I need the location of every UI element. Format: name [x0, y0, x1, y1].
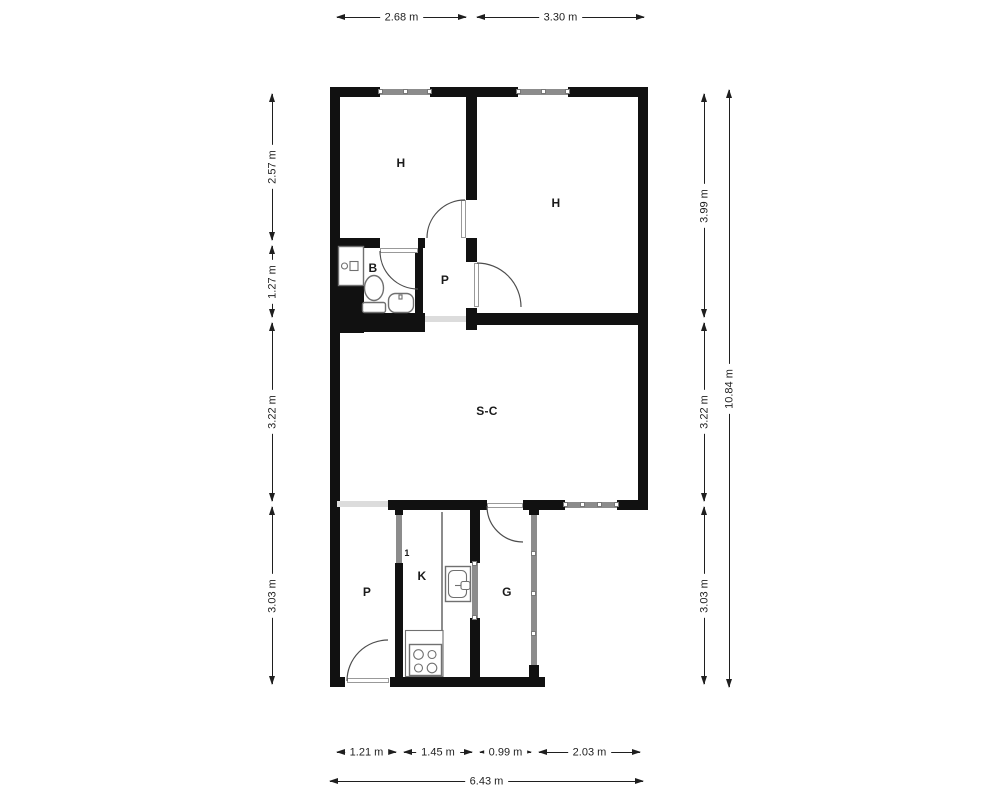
door-swing-arc-bedroom-right — [477, 263, 521, 307]
dimension-bottom-3: 0.99 m — [480, 752, 531, 753]
dimension-bottom-1: 1.21 m — [337, 752, 396, 753]
dimension-label: 1.21 m — [345, 746, 389, 759]
room-label-bathroom: B — [369, 261, 378, 275]
dimension-label: 1.27 m — [266, 260, 279, 304]
stove-icon — [406, 631, 444, 677]
arrowhead-up-icon — [701, 506, 707, 515]
door-swing-arc-bedroom-left — [427, 200, 465, 238]
arrowhead-down-icon — [269, 309, 275, 318]
floorplan-canvas: H H B P S-C P K G 1 2.68 m 3.30 m 2.57 m… — [0, 0, 1000, 800]
dimension-label: 1.45 m — [416, 746, 460, 759]
dimension-label: 2.68 m — [380, 11, 424, 24]
door-swing-arc-entrance — [347, 640, 388, 681]
dimension-label: 2.03 m — [568, 746, 612, 759]
arrowhead-right-icon — [464, 749, 473, 755]
dimension-left-4: 3.03 m — [272, 507, 273, 684]
dimension-bottom-2: 1.45 m — [404, 752, 472, 753]
arrowhead-down-icon — [701, 493, 707, 502]
arrowhead-left-icon — [336, 14, 345, 20]
dimension-label: 3.22 m — [266, 390, 279, 434]
room-label-bedroom-left: H — [397, 156, 406, 170]
door-marker-label: 1 — [404, 548, 409, 558]
arrowhead-down-icon — [701, 676, 707, 685]
dimension-right-1: 3.99 m — [704, 94, 705, 317]
bidet-icon — [389, 294, 414, 313]
dimension-left-3: 3.22 m — [272, 323, 273, 501]
arrowhead-down-icon — [726, 679, 732, 688]
arrowhead-up-icon — [269, 506, 275, 515]
arrowhead-right-icon — [632, 749, 641, 755]
arrowhead-right-icon — [636, 14, 645, 20]
room-label-hallway: P — [441, 273, 449, 287]
plan-symbols-layer — [0, 0, 1000, 800]
arrowhead-left-icon — [538, 749, 547, 755]
door-swing-arc-bathroom — [380, 251, 418, 289]
dimension-top-1: 2.68 m — [337, 17, 466, 18]
dimension-label: 2.57 m — [266, 145, 279, 189]
dimension-label: 6.43 m — [465, 775, 509, 788]
arrowhead-up-icon — [269, 245, 275, 254]
room-label-gallery: G — [502, 585, 512, 599]
arrowhead-left-icon — [329, 778, 338, 784]
arrowhead-left-icon — [476, 14, 485, 20]
arrowhead-up-icon — [701, 322, 707, 331]
dimension-right-3: 3.03 m — [704, 507, 705, 684]
dimension-bottom-total: 6.43 m — [330, 781, 643, 782]
arrowhead-left-icon — [336, 749, 345, 755]
room-label-living-dining: S-C — [476, 404, 498, 418]
dimension-bottom-4: 2.03 m — [539, 752, 640, 753]
dimension-label: 3.22 m — [698, 390, 711, 434]
toilet-icon — [363, 276, 386, 313]
dimension-label: 10.84 m — [723, 364, 736, 414]
arrowhead-right-icon — [388, 749, 397, 755]
dimension-label: 3.30 m — [539, 11, 583, 24]
dimension-left-2: 1.27 m — [272, 246, 273, 317]
room-label-kitchen: K — [418, 569, 427, 583]
arrowhead-up-icon — [269, 93, 275, 102]
arrowhead-right-icon — [458, 14, 467, 20]
door-swing-arc-gallery — [487, 506, 523, 542]
kitchen-sink-icon — [446, 567, 471, 602]
arrowhead-down-icon — [269, 676, 275, 685]
dimension-label: 0.99 m — [484, 746, 528, 759]
arrowhead-up-icon — [269, 322, 275, 331]
dimension-top-2: 3.30 m — [477, 17, 644, 18]
arrowhead-down-icon — [269, 232, 275, 241]
dimension-label: 3.99 m — [698, 184, 711, 228]
bathroom-sink-icon — [339, 247, 364, 286]
arrowhead-left-icon — [403, 749, 412, 755]
arrowhead-up-icon — [701, 93, 707, 102]
room-label-bedroom-right: H — [552, 196, 561, 210]
arrowhead-down-icon — [701, 309, 707, 318]
dimension-label: 3.03 m — [698, 574, 711, 618]
dimension-right-2: 3.22 m — [704, 323, 705, 501]
dimension-label: 3.03 m — [266, 574, 279, 618]
arrowhead-up-icon — [726, 89, 732, 98]
dimension-right-total: 10.84 m — [729, 90, 730, 687]
dimension-left-1: 2.57 m — [272, 94, 273, 240]
room-label-pantry: P — [363, 585, 371, 599]
arrowhead-right-icon — [635, 778, 644, 784]
arrowhead-down-icon — [269, 493, 275, 502]
